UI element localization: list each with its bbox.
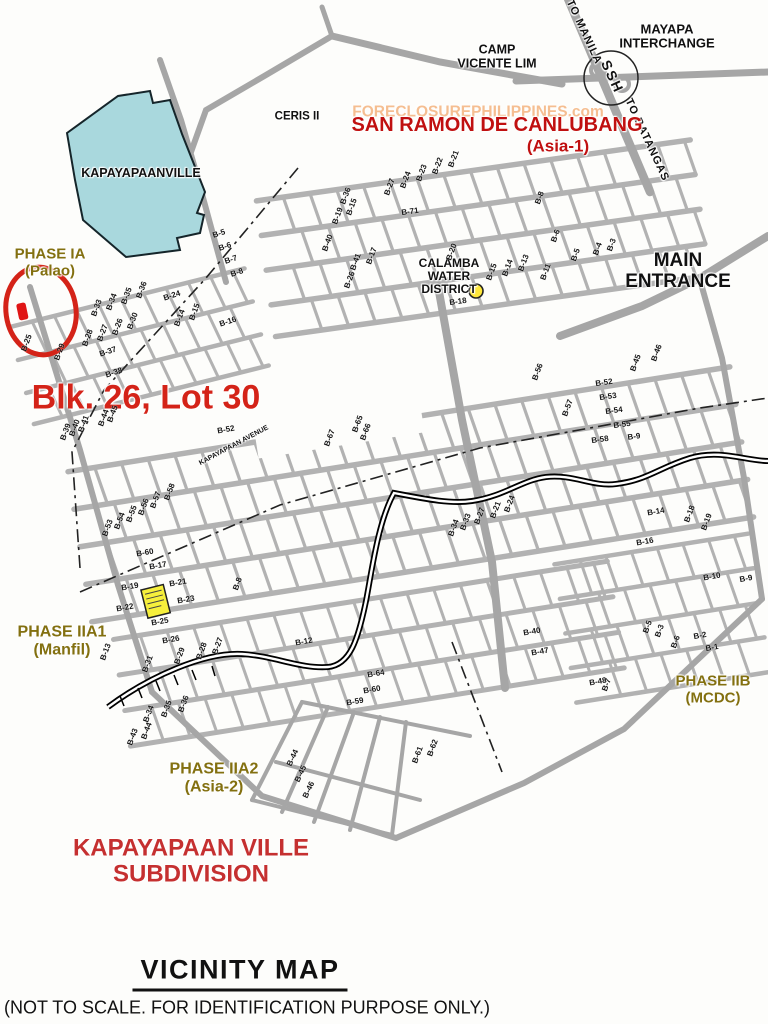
scale-note: (NOT TO SCALE. FOR IDENTIFICATION PURPOS… <box>4 998 490 1019</box>
calamba-water-district-dot <box>469 284 483 298</box>
vicinity-map: MAYAPA INTERCHANGETO MANILASSHTO BATANGA… <box>0 0 768 1024</box>
camp-vicente-lim-road <box>332 36 562 84</box>
vicinity-map-title: VICINITY MAP <box>132 955 347 992</box>
open-space-block <box>247 359 425 458</box>
kapayapaanville-area <box>67 91 205 257</box>
street-map-graphic <box>0 0 768 1024</box>
subject-lot-marker <box>16 302 29 321</box>
